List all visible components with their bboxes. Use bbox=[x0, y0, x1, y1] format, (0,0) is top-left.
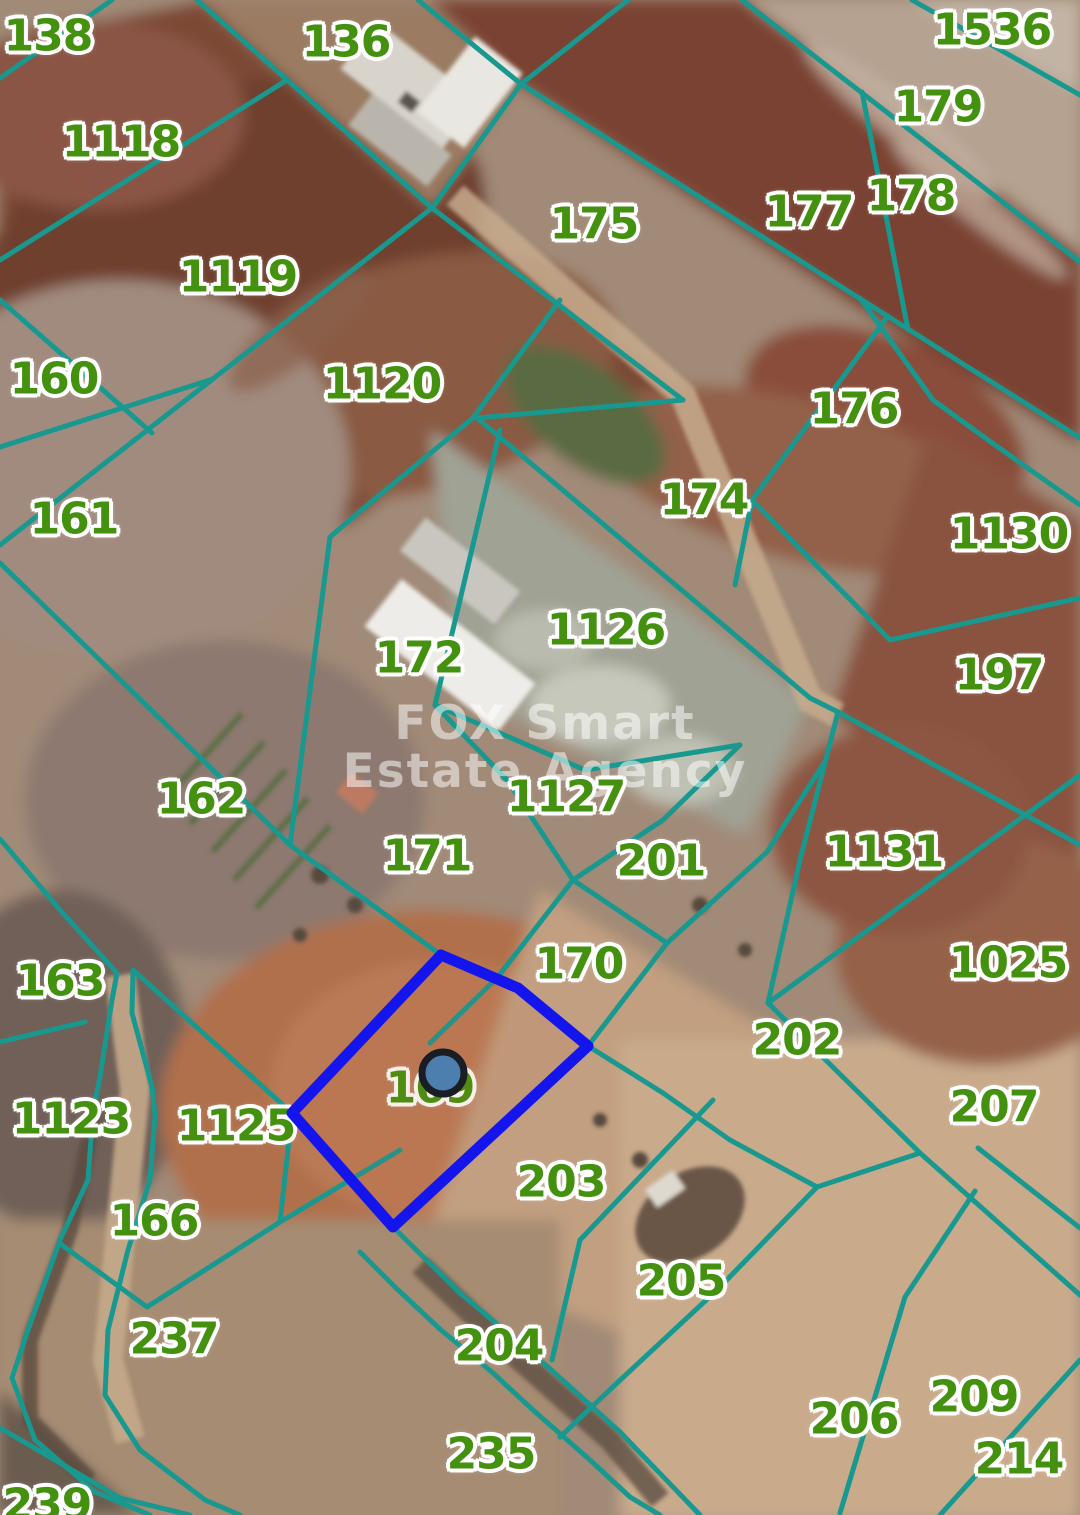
cadastral-map[interactable]: FOX Smart Estate Agency 1381118136153617… bbox=[0, 0, 1080, 1515]
highlight-layer bbox=[0, 0, 1080, 1515]
location-marker[interactable] bbox=[422, 1052, 464, 1094]
